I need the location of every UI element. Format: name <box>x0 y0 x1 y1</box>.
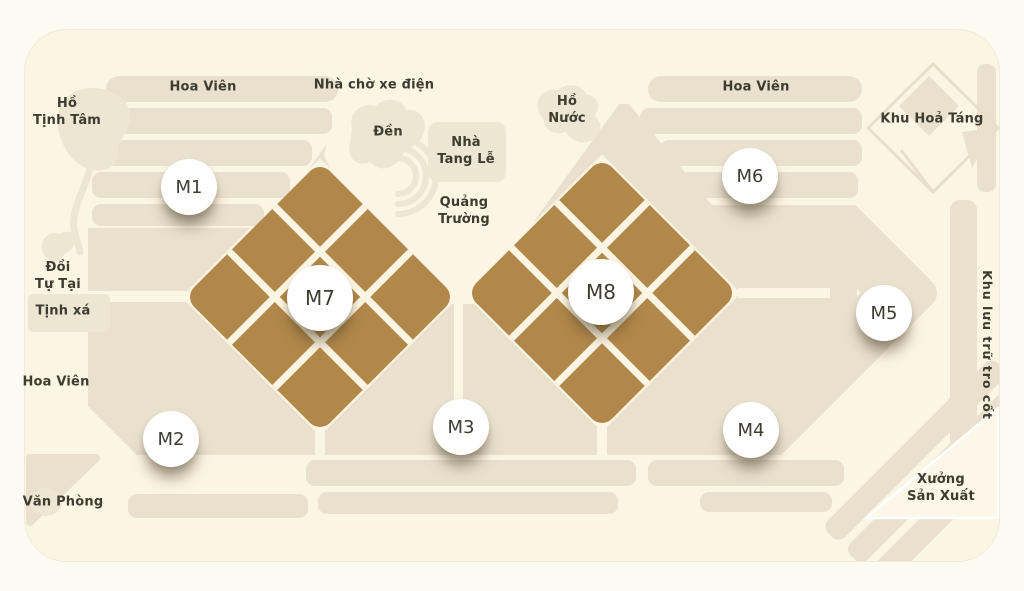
label-line: Nước <box>548 111 586 128</box>
zone-badge-m1[interactable]: M1 <box>161 159 217 215</box>
label-line: Tang Lễ <box>437 152 495 169</box>
zone-badge-m5[interactable]: M5 <box>856 285 912 341</box>
label-line: Quảng <box>438 195 490 212</box>
label-khu-luu-tru-tro-cot: Khu lưu trữ tro cốt <box>979 270 995 420</box>
label-ho-tinh-tam: Hồ Tịnh Tâm <box>33 96 101 130</box>
label-quang-truong: Quảng Trường <box>438 195 490 229</box>
zone-badge-m2[interactable]: M2 <box>143 411 199 467</box>
label-van-phong: Văn Phòng <box>23 495 104 512</box>
label-line: Hồ <box>548 94 586 111</box>
label-line: Hồ <box>33 96 101 113</box>
zone-badge-m8[interactable]: M8 <box>568 259 634 325</box>
label-hoa-vien-w: Hoa Viên <box>22 375 89 392</box>
label-nha-tang-le: Nhà Tang Lễ <box>437 135 495 169</box>
label-line: Sản Xuất <box>907 489 975 506</box>
label-line: Tự Tại <box>35 277 81 294</box>
label-line: Trường <box>438 212 490 229</box>
zone-badge-m7[interactable]: M7 <box>287 265 353 331</box>
label-ho-nuoc: Hồ Nước <box>548 94 586 128</box>
label-line: Tịnh Tâm <box>33 113 101 130</box>
label-den: Đền <box>373 125 403 142</box>
label-tinh-xa: Tịnh xá <box>36 304 91 321</box>
labels-overlay: M1 M2 M3 M4 M5 M6 M7 M8 Hoa Viên Hồ Tịnh… <box>0 0 1024 591</box>
label-doi-tu-tai: Đồi Tự Tại <box>35 260 81 294</box>
zone-badge-m6[interactable]: M6 <box>722 148 778 204</box>
label-xuong-san-xuat: Xưởng Sản Xuất <box>907 472 975 506</box>
label-nha-cho-xe-dien: Nhà chờ xe điện <box>314 78 434 95</box>
label-line: Nhà <box>437 135 495 152</box>
label-hoa-vien-nw: Hoa Viên <box>169 80 236 97</box>
label-line: Xưởng <box>907 472 975 489</box>
label-khu-hoa-tang: Khu Hoả Táng <box>880 112 983 129</box>
masterplan-map: M1 M2 M3 M4 M5 M6 M7 M8 Hoa Viên Hồ Tịnh… <box>0 0 1024 591</box>
label-line: Đồi <box>35 260 81 277</box>
label-hoa-vien-ne: Hoa Viên <box>722 80 789 97</box>
zone-badge-m3[interactable]: M3 <box>433 399 489 455</box>
zone-badge-m4[interactable]: M4 <box>723 402 779 458</box>
